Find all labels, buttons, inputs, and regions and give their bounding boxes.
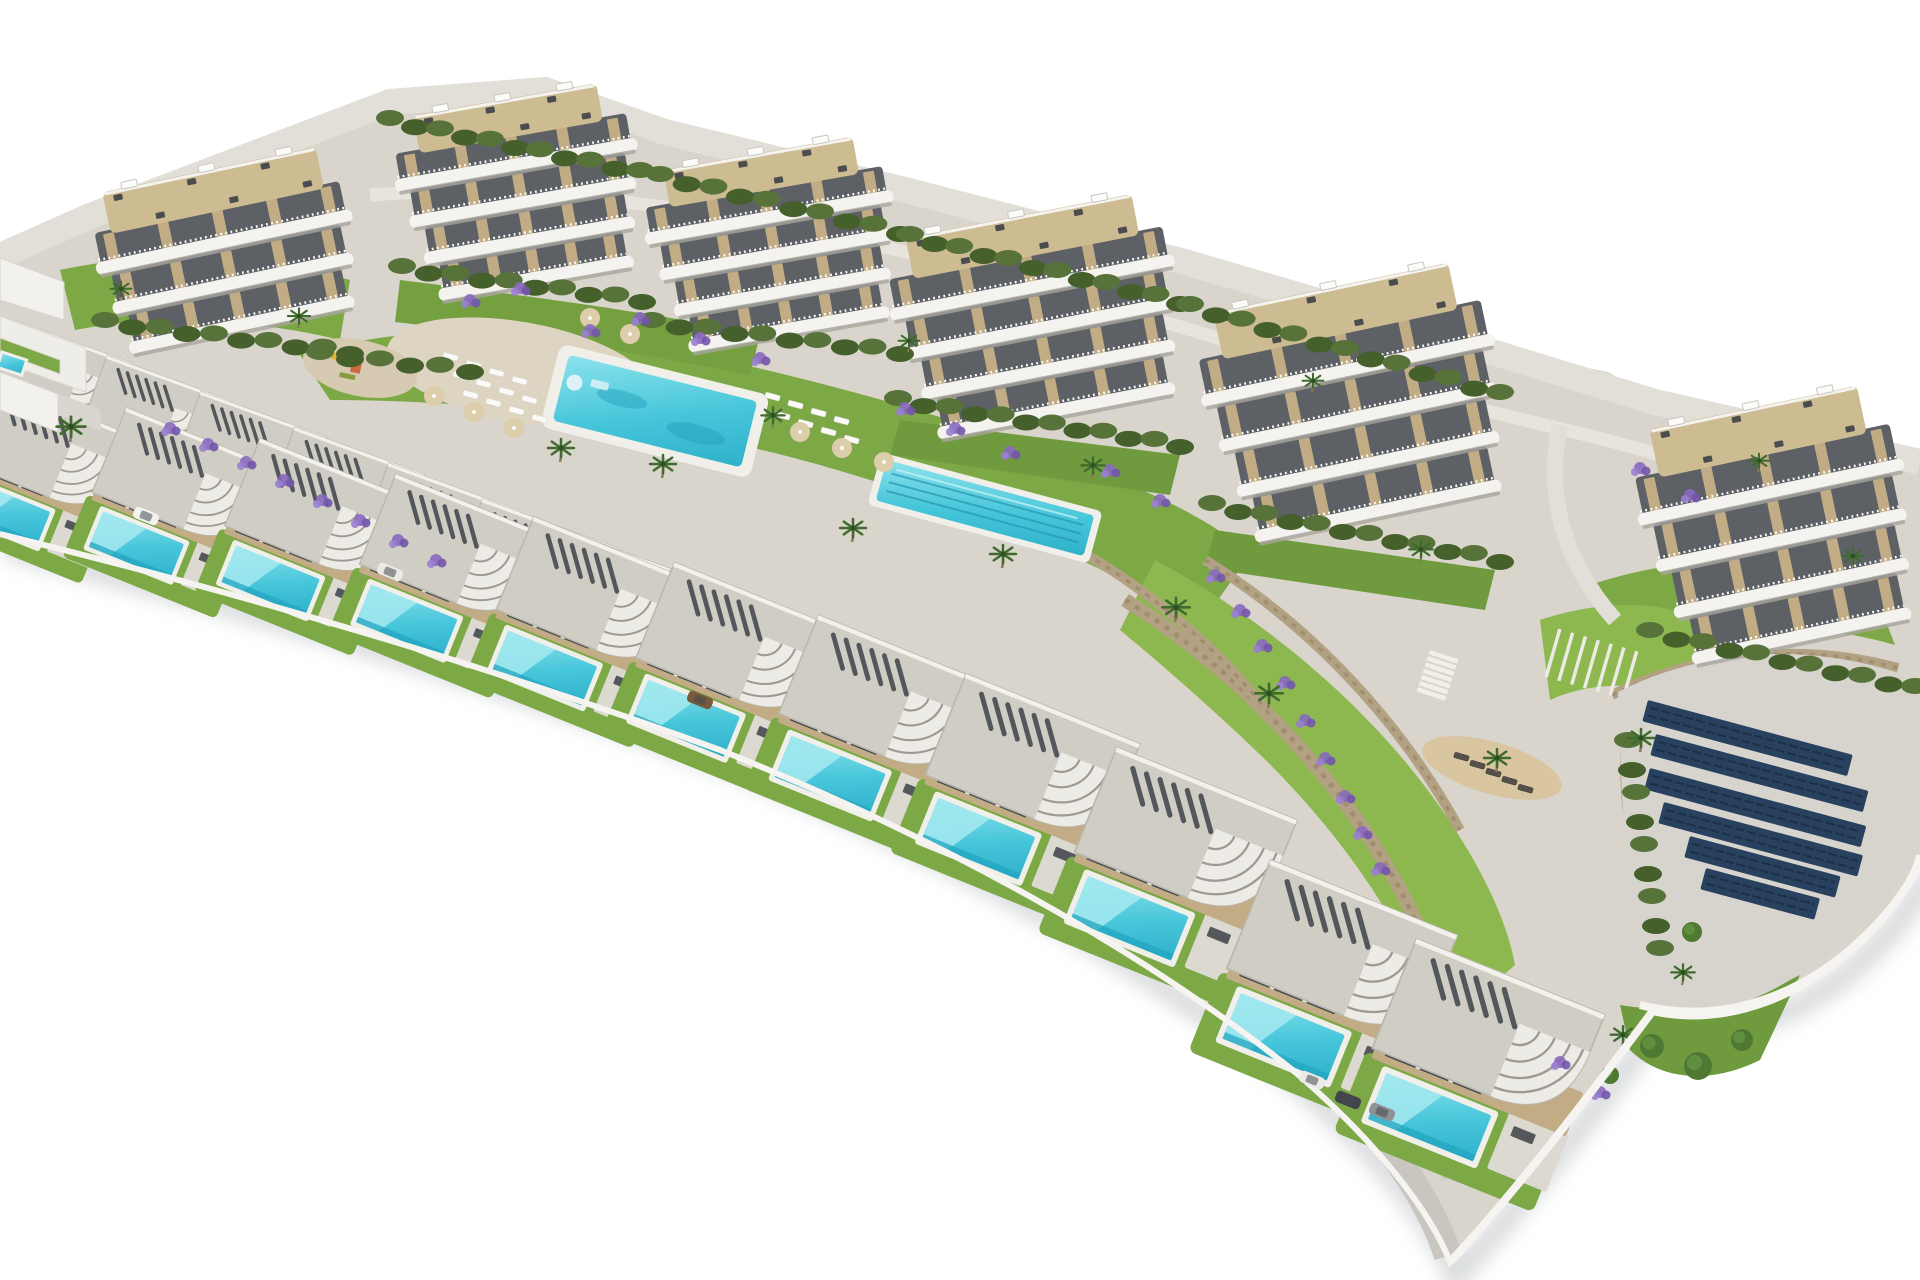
hedge: [254, 332, 282, 348]
lavender-bush: [1327, 757, 1336, 766]
hedge: [994, 250, 1022, 266]
lavender-bush: [472, 299, 481, 308]
palm-crown: [1621, 1032, 1626, 1037]
parasol-pole: [840, 446, 844, 450]
lavender-bush: [172, 427, 181, 436]
lavender-bush: [581, 330, 589, 338]
hedge: [1822, 665, 1850, 681]
hedge: [91, 312, 119, 328]
lavender-bush: [751, 358, 759, 366]
lavender-bush: [275, 480, 283, 488]
lavender-bush: [1206, 575, 1214, 583]
hedge: [1646, 940, 1674, 956]
palm-crown: [851, 526, 856, 531]
palm-crown: [1419, 547, 1424, 552]
lavender-bush: [1001, 452, 1009, 460]
parasol-pole: [588, 316, 592, 320]
lavender-bush: [210, 443, 219, 452]
hedge: [1618, 762, 1646, 778]
lavender-bush: [1551, 1062, 1559, 1070]
palm-crown: [1091, 463, 1096, 468]
hedge: [376, 110, 404, 126]
hedge: [526, 141, 554, 157]
hedge: [945, 238, 973, 254]
hedge: [1140, 431, 1168, 447]
hedge: [1224, 504, 1252, 520]
hedge: [426, 357, 454, 373]
hedge: [970, 248, 998, 264]
lavender-bush: [1296, 720, 1304, 728]
lavender-bush: [1371, 868, 1379, 876]
palm-crown: [119, 287, 123, 291]
parasol-pole: [432, 394, 436, 398]
palm-crown: [68, 424, 74, 430]
hedge: [1277, 514, 1305, 530]
hedge: [1019, 260, 1047, 276]
hedge: [1115, 431, 1143, 447]
lavender-bush: [1162, 499, 1171, 508]
hedge: [601, 161, 629, 177]
lavender-bush: [389, 540, 397, 548]
hedge: [1250, 505, 1278, 521]
hedge: [1355, 525, 1383, 541]
hedge: [1460, 381, 1488, 397]
hedge: [601, 286, 629, 302]
hedge: [1848, 667, 1876, 683]
hedge: [1117, 284, 1145, 300]
hedge: [415, 266, 443, 282]
hedge: [961, 406, 989, 422]
lavender-bush: [896, 408, 904, 416]
parasol-pole: [472, 410, 476, 414]
hedge: [1486, 384, 1514, 400]
hedge: [693, 319, 721, 335]
hedge: [476, 131, 504, 147]
lavender-bush: [1287, 681, 1296, 690]
hedge: [748, 325, 776, 341]
palm-crown: [1681, 970, 1686, 975]
hedge: [401, 119, 429, 135]
hedge: [227, 333, 255, 349]
lavender-bush: [1364, 831, 1373, 840]
lavender-bush: [427, 560, 435, 568]
hedge: [118, 319, 146, 335]
lavender-bush: [1562, 1061, 1571, 1070]
parasol-pole: [628, 332, 632, 336]
hedge: [1381, 534, 1409, 550]
lavender-bush: [461, 300, 469, 308]
hedge: [1636, 622, 1664, 638]
palm-crown: [1495, 756, 1500, 761]
hedge: [896, 226, 924, 242]
lavender-bush: [762, 357, 771, 366]
lavender-bush: [946, 428, 954, 436]
lavender-bush: [1307, 719, 1316, 728]
hedge: [1279, 325, 1307, 341]
hedge: [1329, 524, 1357, 540]
parasol-pole: [798, 430, 802, 434]
lavender-bush: [1217, 574, 1226, 583]
hedge: [551, 150, 579, 166]
palm-crown: [1311, 379, 1315, 383]
palm-crown: [661, 462, 666, 467]
tree-highlight: [1687, 1055, 1702, 1070]
hedge: [1228, 311, 1256, 327]
lavender-bush: [1347, 795, 1356, 804]
hedge: [1630, 836, 1658, 852]
hedge: [1303, 515, 1331, 531]
palm-crown: [907, 339, 911, 343]
parasol-pole: [882, 460, 886, 464]
hedge: [451, 130, 479, 146]
hedge: [200, 325, 228, 341]
lavender-bush: [248, 461, 257, 470]
lavender-bush: [313, 500, 321, 508]
hedge: [779, 201, 807, 217]
hedge: [1198, 495, 1226, 511]
hedge: [1486, 554, 1514, 570]
hedge: [548, 279, 576, 295]
palm-crown: [1266, 691, 1271, 696]
hedge: [468, 273, 496, 289]
hedge: [833, 214, 861, 230]
hedge: [1460, 545, 1488, 561]
hedge: [1434, 544, 1462, 560]
hedge: [1434, 369, 1462, 385]
hedge: [426, 120, 454, 136]
hedge: [1357, 351, 1385, 367]
palm-crown: [559, 446, 564, 451]
lavender-bush: [522, 287, 531, 296]
parasol-pole: [512, 426, 516, 430]
palm-crown: [297, 314, 301, 318]
lavender-bush: [1692, 494, 1701, 503]
palm-crown: [771, 413, 776, 418]
hedge: [1254, 322, 1282, 338]
hedge: [366, 350, 394, 366]
hedge: [396, 358, 424, 374]
lavender-bush: [691, 338, 699, 346]
lavender-bush: [1631, 468, 1639, 476]
lavender-bush: [1151, 500, 1159, 508]
lavender-bush: [1382, 867, 1391, 876]
hedge: [1769, 654, 1797, 670]
lavender-bush: [631, 318, 639, 326]
aerial-development-render: [0, 0, 1920, 1280]
palm-crown: [1757, 459, 1761, 463]
hedge: [673, 176, 701, 192]
hedge: [501, 140, 529, 156]
hedge: [858, 339, 886, 355]
lavender-bush: [362, 519, 371, 528]
hedge: [1795, 656, 1823, 672]
lavender-bush: [1112, 469, 1121, 478]
hedge: [456, 364, 484, 380]
hedge: [987, 406, 1015, 422]
hedge: [1663, 632, 1691, 648]
hedge: [806, 203, 834, 219]
hedge: [1141, 286, 1169, 302]
lavender-bush: [1012, 451, 1021, 460]
hedge: [1689, 633, 1717, 649]
lavender-bush: [1353, 832, 1361, 840]
hedge: [628, 294, 656, 310]
hedge: [1063, 423, 1091, 439]
hedge: [1622, 784, 1650, 800]
hedge: [776, 333, 804, 349]
hedge: [935, 398, 963, 414]
hedge: [1716, 643, 1744, 659]
hedge: [859, 216, 887, 232]
palm-crown: [1001, 552, 1006, 557]
hedge: [1038, 415, 1066, 431]
hedge: [666, 319, 694, 335]
hedge: [1626, 814, 1654, 830]
hedge: [1331, 340, 1359, 356]
hedge: [921, 236, 949, 252]
lavender-bush: [161, 428, 169, 436]
hedge: [336, 351, 364, 367]
palm-crown: [1173, 605, 1178, 610]
lavender-bush: [1231, 610, 1239, 618]
hedge: [1383, 355, 1411, 371]
hedge: [699, 178, 727, 194]
lavender-bush: [1242, 609, 1251, 618]
hedge: [726, 189, 754, 205]
hedge: [441, 265, 469, 281]
hedge: [1012, 414, 1040, 430]
hedge: [1305, 337, 1333, 353]
lavender-bush: [592, 329, 601, 338]
lavender-bush: [324, 499, 333, 508]
hedge: [1642, 918, 1670, 934]
hedge: [1068, 272, 1096, 288]
lavender-bush: [907, 407, 916, 416]
hedge: [1409, 366, 1437, 382]
lavender-bush: [642, 317, 651, 326]
hedge: [145, 319, 173, 335]
hedge: [1634, 866, 1662, 882]
tree-highlight: [1642, 1036, 1655, 1049]
lavender-bush: [1253, 645, 1261, 653]
hedge: [803, 332, 831, 348]
lavender-bush: [199, 444, 207, 452]
lavender-bush: [286, 479, 295, 488]
lavender-bush: [957, 427, 966, 436]
lavender-bush: [1642, 467, 1651, 476]
hedge: [1092, 274, 1120, 290]
hedge: [282, 339, 310, 355]
lavender-bush: [702, 337, 711, 346]
hedge: [721, 326, 749, 342]
hedge: [575, 287, 603, 303]
palm-crown: [1851, 554, 1855, 558]
hedge: [576, 152, 604, 168]
lavender-bush: [1681, 495, 1689, 503]
hedge: [753, 191, 781, 207]
hedge: [388, 258, 416, 274]
render-stage: [0, 0, 1920, 1280]
lavender-bush: [351, 520, 359, 528]
lavender-bush: [237, 462, 245, 470]
hedge: [1176, 296, 1204, 312]
lavender-bush: [438, 559, 447, 568]
lavender-bush: [1264, 644, 1273, 653]
hedge: [1638, 888, 1666, 904]
lavender-bush: [1336, 796, 1344, 804]
lavender-bush: [400, 539, 409, 548]
hedge: [1043, 262, 1071, 278]
hedge: [646, 166, 674, 182]
hedge: [173, 326, 201, 342]
hedge: [831, 339, 859, 355]
tree-highlight: [1733, 1031, 1745, 1043]
hedge: [306, 344, 334, 360]
hedge: [1202, 307, 1230, 323]
lavender-bush: [1602, 1091, 1611, 1100]
hedge: [1742, 644, 1770, 660]
hedge: [1875, 676, 1903, 692]
lavender-bush: [511, 288, 519, 296]
hedge: [1166, 439, 1194, 455]
hedge: [1089, 423, 1117, 439]
palm-crown: [1639, 736, 1644, 741]
tree-highlight: [1684, 924, 1695, 935]
lavender-bush: [1316, 758, 1324, 766]
